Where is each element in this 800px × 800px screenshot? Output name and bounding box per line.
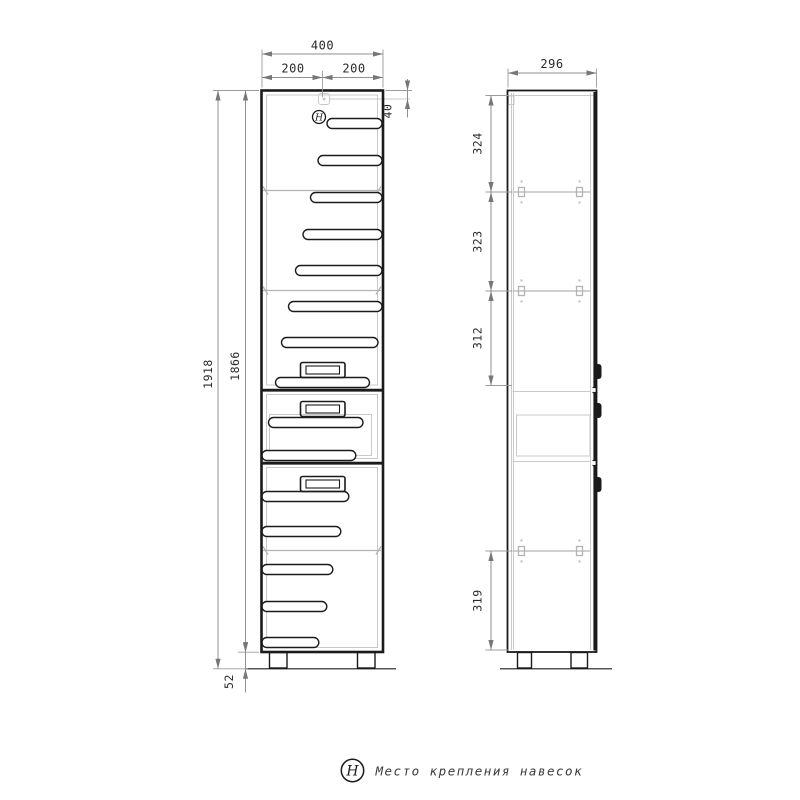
slat (296, 266, 383, 276)
dim-depth: 296 (540, 57, 563, 71)
side-drawer-box (517, 415, 591, 456)
legend-label: Место крепления навесок (375, 764, 584, 779)
slat (303, 230, 382, 240)
front-feet (246, 653, 396, 669)
slat (262, 638, 319, 648)
dim-body-height: 1866 (228, 351, 242, 381)
legend-symbol-letter: Н (345, 764, 359, 780)
side-feet (500, 653, 612, 669)
dim-leg-height: 52 (222, 674, 236, 689)
slat (262, 565, 333, 575)
dim-total-height: 1918 (201, 359, 215, 389)
knob (594, 364, 602, 379)
side-view (500, 91, 612, 669)
slat (311, 193, 383, 203)
foot (518, 653, 532, 669)
dim-bottom-section: 319 (471, 589, 485, 611)
hanger-mount-icon: Н (313, 111, 326, 124)
knob (594, 403, 602, 418)
shelf-marker-row (513, 539, 591, 562)
side-shelves (513, 180, 591, 562)
technical-drawing-page: Н 400 200 200 40 1918 (0, 0, 800, 800)
shelf-marker-row (513, 180, 591, 203)
slat (262, 492, 349, 502)
shelf-marker-row (513, 279, 591, 302)
dim-third-section: 312 (471, 327, 485, 349)
side-dimensions: 296 324 323 312 319 (471, 57, 597, 650)
front-slats (262, 119, 382, 648)
slat (262, 527, 341, 537)
slat (318, 156, 382, 166)
hanger-mount-icon: Н (341, 759, 363, 781)
legend: Н Место крепления навесок (341, 759, 583, 781)
dim-second-section: 323 (471, 230, 485, 252)
foot (358, 653, 376, 669)
slat (269, 418, 364, 428)
side-body-outline (508, 91, 597, 653)
dim-hanger-offset: 40 (381, 104, 395, 119)
slat (276, 378, 370, 388)
foot (571, 653, 588, 669)
slat (327, 119, 382, 129)
hanger-symbol-letter: Н (314, 114, 323, 124)
knob (594, 477, 602, 492)
top-door-handle (301, 363, 346, 378)
slat (289, 302, 383, 312)
bottom-door-handle (301, 477, 346, 492)
bracket-screw-dot (323, 98, 326, 101)
dim-total-width: 400 (311, 39, 334, 53)
slat (282, 338, 379, 348)
cabinet-drawing: Н 400 200 200 40 1918 (0, 0, 800, 800)
slat (262, 602, 327, 612)
foot (270, 653, 288, 669)
dim-left-half: 200 (281, 62, 304, 76)
slat (262, 451, 356, 461)
dim-right-half: 200 (342, 62, 365, 76)
front-view: Н (246, 91, 410, 669)
dim-top-section: 324 (471, 132, 485, 154)
